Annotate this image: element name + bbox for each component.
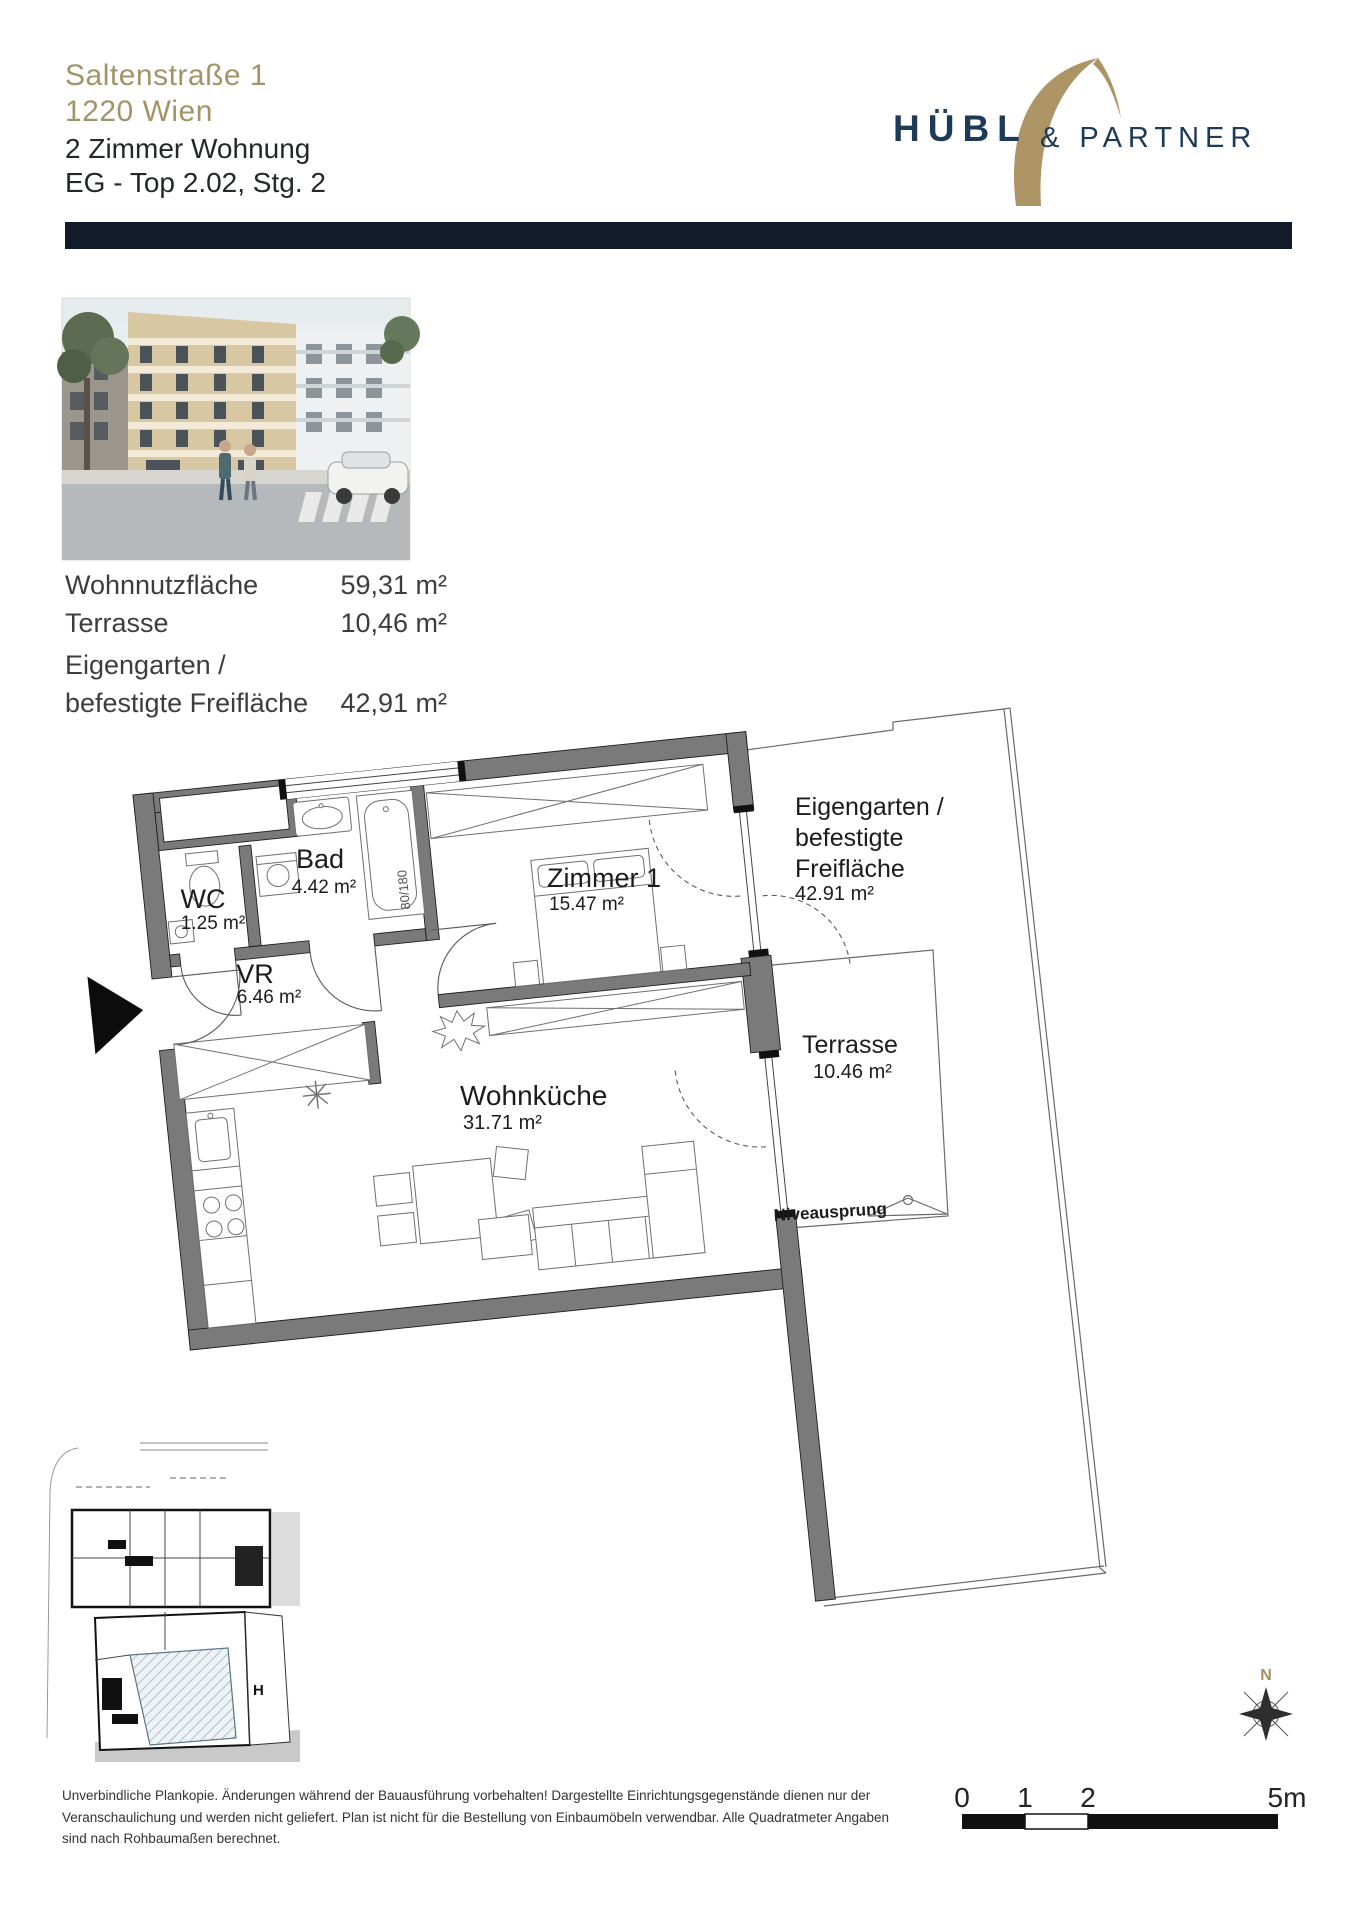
room-area-vr: 6.46 m² — [237, 987, 301, 1008]
logo-word-partner: & PARTNER — [1040, 122, 1257, 155]
room-label-wohnkueche: Wohnküche — [460, 1080, 607, 1111]
garden-label-3: Freifläche — [795, 855, 905, 883]
header-divider-bar — [65, 222, 1292, 249]
room-area-zimmer1: 15.47 m² — [549, 894, 624, 915]
area-label-eigengarten-1: Eigengarten / — [65, 646, 447, 684]
disclaimer-line3: sind nach Rohbaumaßen berechnet. — [62, 1828, 889, 1850]
floor-plan-canvas: 80/180 Bad 4.42 m² WC 1.25 m² VR 6.46 m²… — [0, 0, 1356, 1920]
compass-north-label: N — [1260, 1667, 1272, 1684]
area-label-eigengarten-2: befestigte Freifläche — [65, 684, 308, 722]
area-label-terrasse: Terrasse — [65, 604, 169, 642]
room-label-wc: WC — [181, 884, 226, 914]
room-label-zimmer1: Zimmer 1 — [547, 863, 661, 893]
disclaimer-line2: Veranschaulichung und werden nicht gelie… — [62, 1807, 889, 1829]
area-label-wohnnutzflaeche: Wohnnutzfläche — [65, 566, 258, 604]
disclaimer: Unverbindliche Plankopie. Änderungen wäh… — [62, 1785, 889, 1850]
coffee-table — [478, 1215, 532, 1260]
compass-icon: N — [1239, 1667, 1293, 1741]
room-label-bad: Bad — [296, 844, 344, 874]
area-value-terrasse: 10,46 m² — [340, 604, 447, 642]
garden-label-1: Eigengarten / — [795, 793, 944, 821]
area-value-eigengarten: 42,91 m² — [340, 684, 447, 722]
site-plan-marker: H — [253, 1682, 264, 1699]
scale-tick-1: 1 — [1017, 1782, 1033, 1813]
address-line1: Saltenstraße 1 — [65, 58, 326, 94]
floorplan-page: 80/180 Bad 4.42 m² WC 1.25 m² VR 6.46 m²… — [0, 0, 1356, 1920]
entrance-arrow-icon — [87, 971, 147, 1054]
scale-tick-0: 0 — [954, 1782, 970, 1813]
scale-bar: 0 1 2 5m — [954, 1782, 1306, 1829]
terrace-label: Terrasse — [802, 1031, 898, 1059]
garden-area: 42.91 m² — [795, 883, 874, 905]
building-photo — [57, 298, 420, 560]
scale-tick-5m: 5m — [1268, 1782, 1307, 1813]
garden-label-2: befestigte — [795, 824, 903, 852]
room-label-vr: VR — [236, 959, 274, 989]
site-plan: H — [47, 1443, 300, 1762]
room-area-wc: 1.25 m² — [181, 913, 245, 934]
area-table: Wohnnutzfläche 59,31 m² Terrasse 10,46 m… — [65, 566, 447, 722]
unit-location: EG - Top 2.02, Stg. 2 — [65, 166, 326, 200]
header-address: Saltenstraße 1 1220 Wien 2 Zimmer Wohnun… — [65, 58, 326, 200]
address-line2: 1220 Wien — [65, 94, 326, 130]
scale-tick-2: 2 — [1080, 1782, 1096, 1813]
unit-type: 2 Zimmer Wohnung — [65, 132, 326, 166]
terrace-area: 10.46 m² — [813, 1061, 892, 1083]
area-value-wohnnutzflaeche: 59,31 m² — [340, 566, 447, 604]
disclaimer-line1: Unverbindliche Plankopie. Änderungen wäh… — [62, 1785, 889, 1807]
room-area-wohnkueche: 31.71 m² — [463, 1112, 542, 1134]
room-area-bad: 4.42 m² — [292, 877, 356, 898]
logo-word-huebl: HÜBL — [893, 108, 1028, 150]
